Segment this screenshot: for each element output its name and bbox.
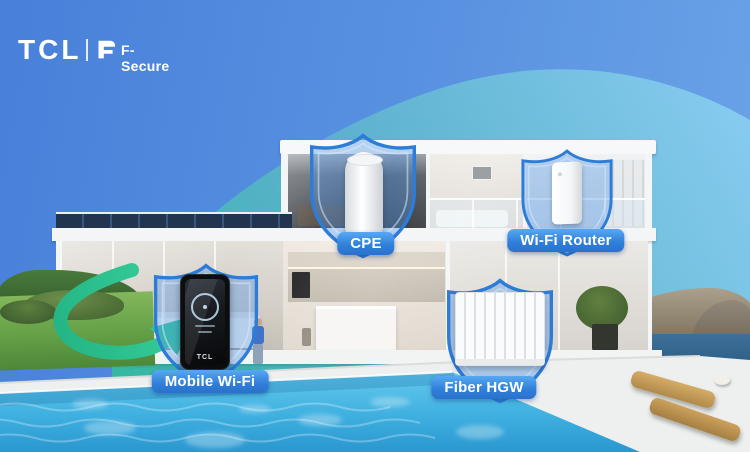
mobile-wifi-screen: TCL — [185, 279, 225, 365]
fsecure-logo-icon — [97, 40, 116, 59]
cpe-label: CPE — [337, 232, 394, 255]
mobile-wifi-label: Mobile Wi-Fi — [152, 370, 269, 393]
screen-line — [198, 331, 212, 333]
cpe-top-cap — [347, 154, 383, 166]
fsecure-logo-text: F-Secure — [121, 42, 169, 74]
screen-gloss — [185, 279, 217, 365]
device-brand-logo: TCL — [185, 354, 225, 361]
brand-divider — [86, 39, 88, 61]
hero-banner: TCL CPE Wi-Fi Router Mobile Wi-Fi Fiber … — [0, 0, 750, 452]
cpe-device — [345, 152, 383, 236]
fiber-hgw-device — [455, 292, 545, 366]
tcl-logo: TCL — [18, 34, 81, 66]
signal-gauge-icon — [191, 293, 219, 321]
wifi-router-device — [552, 161, 582, 224]
screen-line — [195, 325, 215, 327]
mobile-wifi-device: TCL — [180, 274, 230, 370]
gauge-dot — [203, 305, 207, 309]
fiber-hgw-base — [456, 359, 544, 365]
fiber-hgw-label: Fiber HGW — [431, 376, 536, 399]
router-led — [558, 172, 562, 176]
wifi-router-label: Wi-Fi Router — [507, 229, 624, 252]
